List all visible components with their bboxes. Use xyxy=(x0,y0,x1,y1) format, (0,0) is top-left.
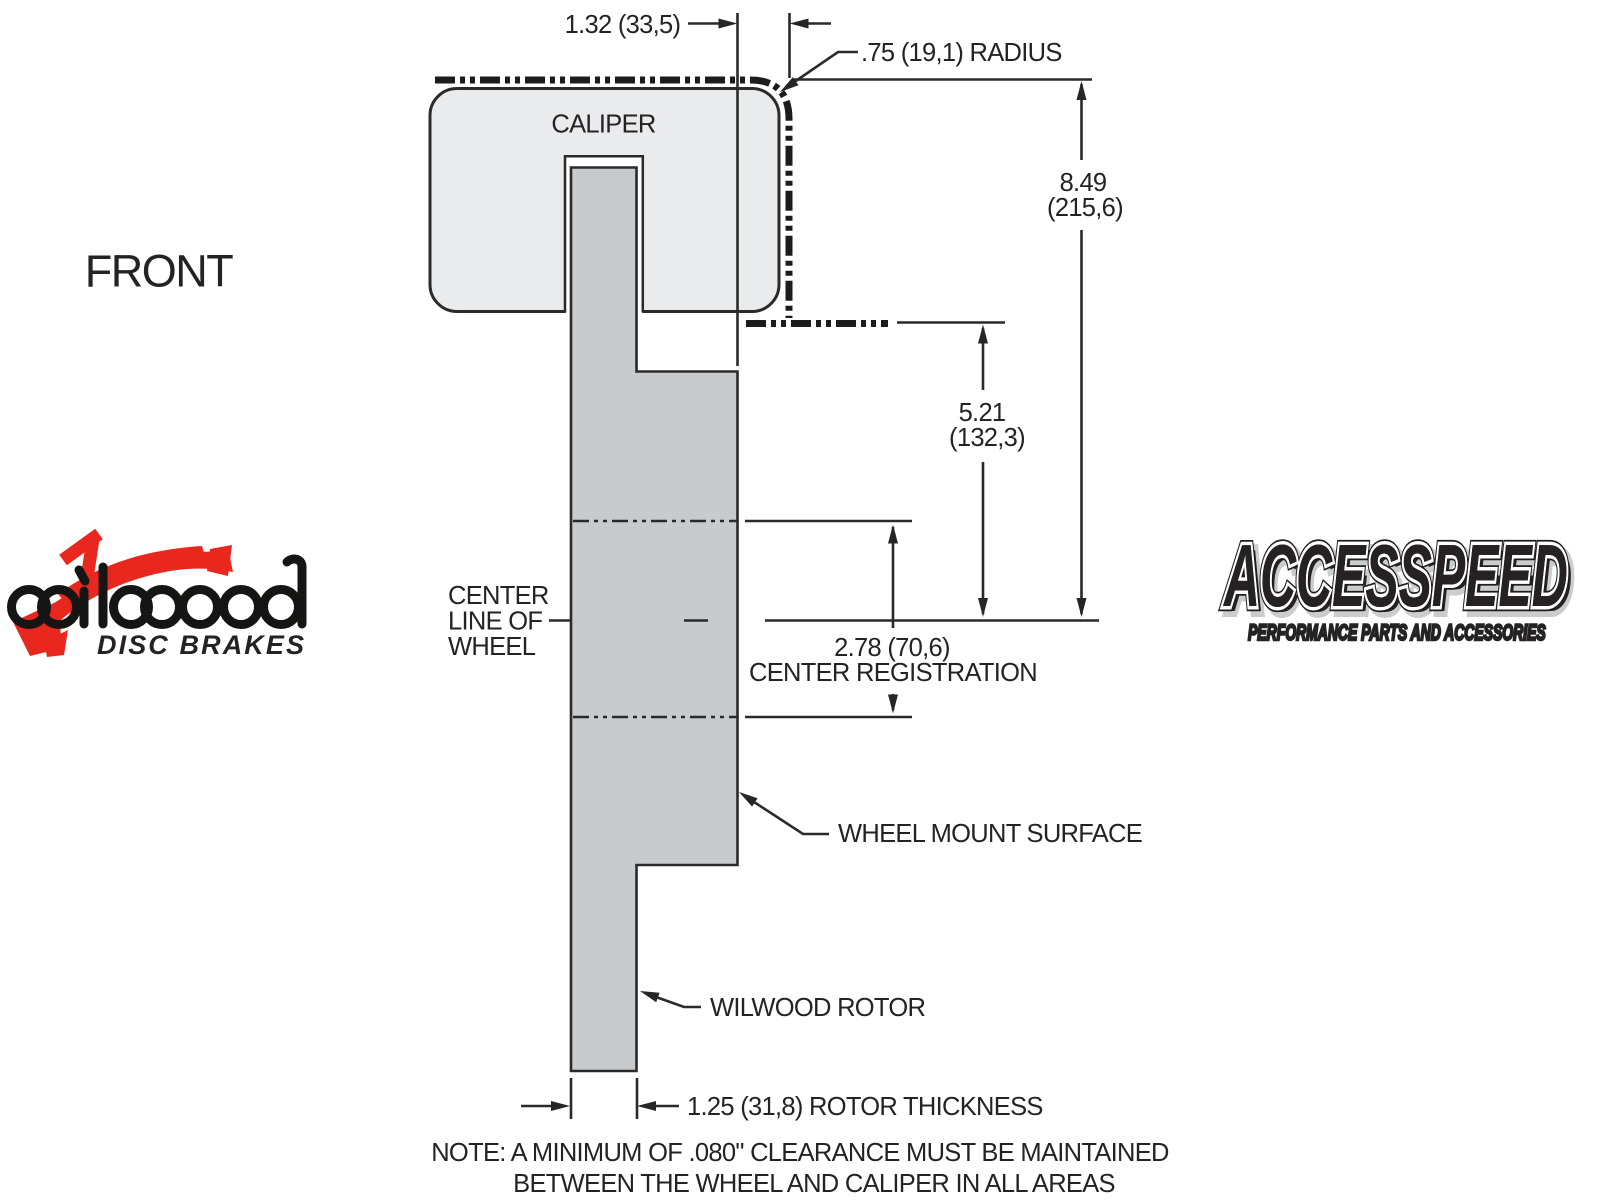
svg-text:CENTER: CENTER xyxy=(448,582,549,610)
svg-text:DISC BRAKES: DISC BRAKES xyxy=(97,630,306,660)
svg-text:(132,3): (132,3) xyxy=(949,424,1025,452)
svg-text:WILWOOD ROTOR: WILWOOD ROTOR xyxy=(710,994,925,1022)
svg-text:NOTE: A MINIMUM OF .080" CLEAR: NOTE: A MINIMUM OF .080" CLEARANCE MUST … xyxy=(431,1139,1169,1167)
svg-text:.75 (19,1) RADIUS: .75 (19,1) RADIUS xyxy=(861,39,1062,67)
svg-text:WHEEL MOUNT SURFACE: WHEEL MOUNT SURFACE xyxy=(838,820,1142,848)
svg-text:FRONT: FRONT xyxy=(85,246,233,297)
svg-text:CENTER REGISTRATION: CENTER REGISTRATION xyxy=(749,659,1037,687)
svg-text:(215,6): (215,6) xyxy=(1047,194,1123,222)
svg-text:PERFORMANCE PARTS AND ACCESSOR: PERFORMANCE PARTS AND ACCESSORIES xyxy=(1248,620,1546,645)
svg-text:1.25 (31,8) ROTOR THICKNESS: 1.25 (31,8) ROTOR THICKNESS xyxy=(687,1093,1043,1121)
svg-text:8.49: 8.49 xyxy=(1060,169,1107,197)
svg-text:LINE OF: LINE OF xyxy=(448,608,542,636)
svg-text:5.21: 5.21 xyxy=(959,399,1006,427)
svg-text:1.32 (33,5): 1.32 (33,5) xyxy=(565,11,681,39)
svg-text:2.78 (70,6): 2.78 (70,6) xyxy=(834,634,950,662)
svg-text:BETWEEN THE WHEEL AND CALIPER: BETWEEN THE WHEEL AND CALIPER IN ALL ARE… xyxy=(513,1170,1115,1198)
svg-text:WHEEL: WHEEL xyxy=(448,633,536,661)
svg-text:CALIPER: CALIPER xyxy=(551,111,656,139)
svg-text:ACCESSPEED: ACCESSPEED xyxy=(1223,527,1568,625)
